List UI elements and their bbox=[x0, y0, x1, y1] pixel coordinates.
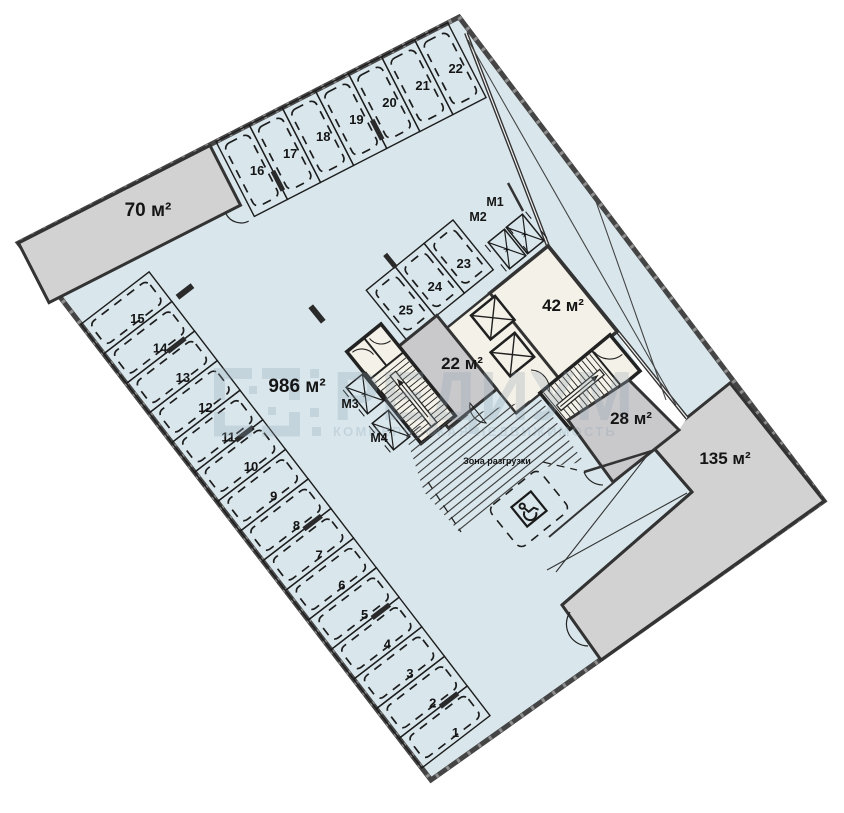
svg-text:70 м²: 70 м² bbox=[125, 200, 172, 221]
svg-text:М1: М1 bbox=[486, 195, 503, 209]
svg-text:3: 3 bbox=[406, 666, 413, 681]
svg-text:28 м²: 28 м² bbox=[610, 409, 652, 428]
svg-text:986 м²: 986 м² bbox=[268, 376, 325, 397]
svg-text:6: 6 bbox=[338, 577, 345, 592]
svg-text:М4: М4 bbox=[370, 431, 387, 445]
svg-text:М3: М3 bbox=[341, 397, 358, 411]
svg-text:24: 24 bbox=[428, 279, 443, 294]
svg-text:17: 17 bbox=[283, 146, 297, 161]
svg-text:23: 23 bbox=[456, 256, 470, 271]
svg-text:7: 7 bbox=[316, 548, 323, 563]
svg-text:9: 9 bbox=[270, 489, 277, 504]
svg-text:4: 4 bbox=[384, 637, 392, 652]
svg-text:19: 19 bbox=[349, 112, 363, 127]
svg-text:18: 18 bbox=[316, 129, 330, 144]
svg-text:15: 15 bbox=[130, 311, 144, 326]
svg-text:14: 14 bbox=[153, 341, 168, 356]
svg-text:135 м²: 135 м² bbox=[699, 449, 751, 468]
svg-text:8: 8 bbox=[293, 518, 300, 533]
svg-text:1: 1 bbox=[452, 725, 459, 740]
svg-text:5: 5 bbox=[361, 607, 368, 622]
svg-text:13: 13 bbox=[176, 370, 190, 385]
svg-text:21: 21 bbox=[415, 78, 429, 93]
svg-text:22 м²: 22 м² bbox=[441, 354, 483, 373]
svg-text:20: 20 bbox=[382, 95, 396, 110]
svg-text:22: 22 bbox=[448, 61, 462, 76]
svg-text:М2: М2 bbox=[469, 210, 486, 224]
svg-text:42 м²: 42 м² bbox=[542, 296, 584, 315]
svg-text:Зона разгрузки: Зона разгрузки bbox=[463, 456, 531, 466]
svg-text:25: 25 bbox=[399, 303, 413, 318]
svg-text:10: 10 bbox=[244, 459, 258, 474]
svg-text:2: 2 bbox=[429, 696, 436, 711]
svg-text:12: 12 bbox=[198, 400, 212, 415]
svg-text:16: 16 bbox=[250, 163, 264, 178]
